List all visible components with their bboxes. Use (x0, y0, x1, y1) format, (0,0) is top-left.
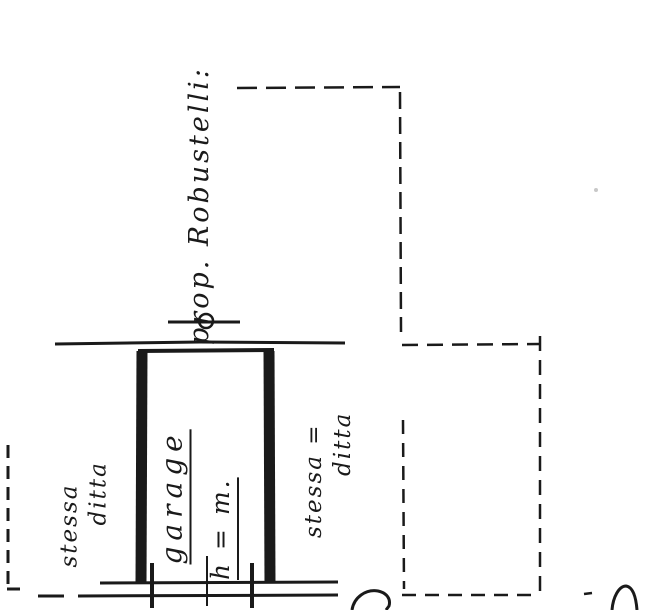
scanned-plan-sheet: prop. Robustelli: garage h = m. stessa d… (0, 0, 650, 610)
garage-room-label: garage (155, 390, 189, 565)
bottom-center-squiggle (352, 591, 390, 610)
left-neighbor-line1: stessa (56, 443, 85, 568)
garage-left-wall (141, 351, 142, 583)
right-neighbor-line1: stessa = (300, 388, 329, 538)
bottom-line-upper (100, 582, 338, 583)
bottom-right-squiggle (612, 586, 637, 610)
garage-top-wall (138, 350, 274, 351)
bottom-right-dash-mark (584, 593, 592, 594)
scan-artifact-dot (594, 188, 598, 192)
left-neighbor-line2: ditta (84, 443, 113, 526)
garage-right-wall (269, 351, 270, 583)
right-neighbor-label: stessa = ditta (300, 388, 362, 538)
right-neighbor-line2: ditta (329, 388, 358, 476)
upper-right-boundary-dashed-line (400, 92, 401, 332)
top-boundary-dashed-line (237, 87, 400, 88)
parcel-dashed-top (402, 344, 540, 345)
owner-label: prop. Robustelli: (183, 55, 227, 345)
garage-height-note: h = m. (205, 430, 237, 580)
left-neighbor-label: stessa ditta (56, 443, 114, 568)
parcel-dashed-left (403, 420, 404, 589)
